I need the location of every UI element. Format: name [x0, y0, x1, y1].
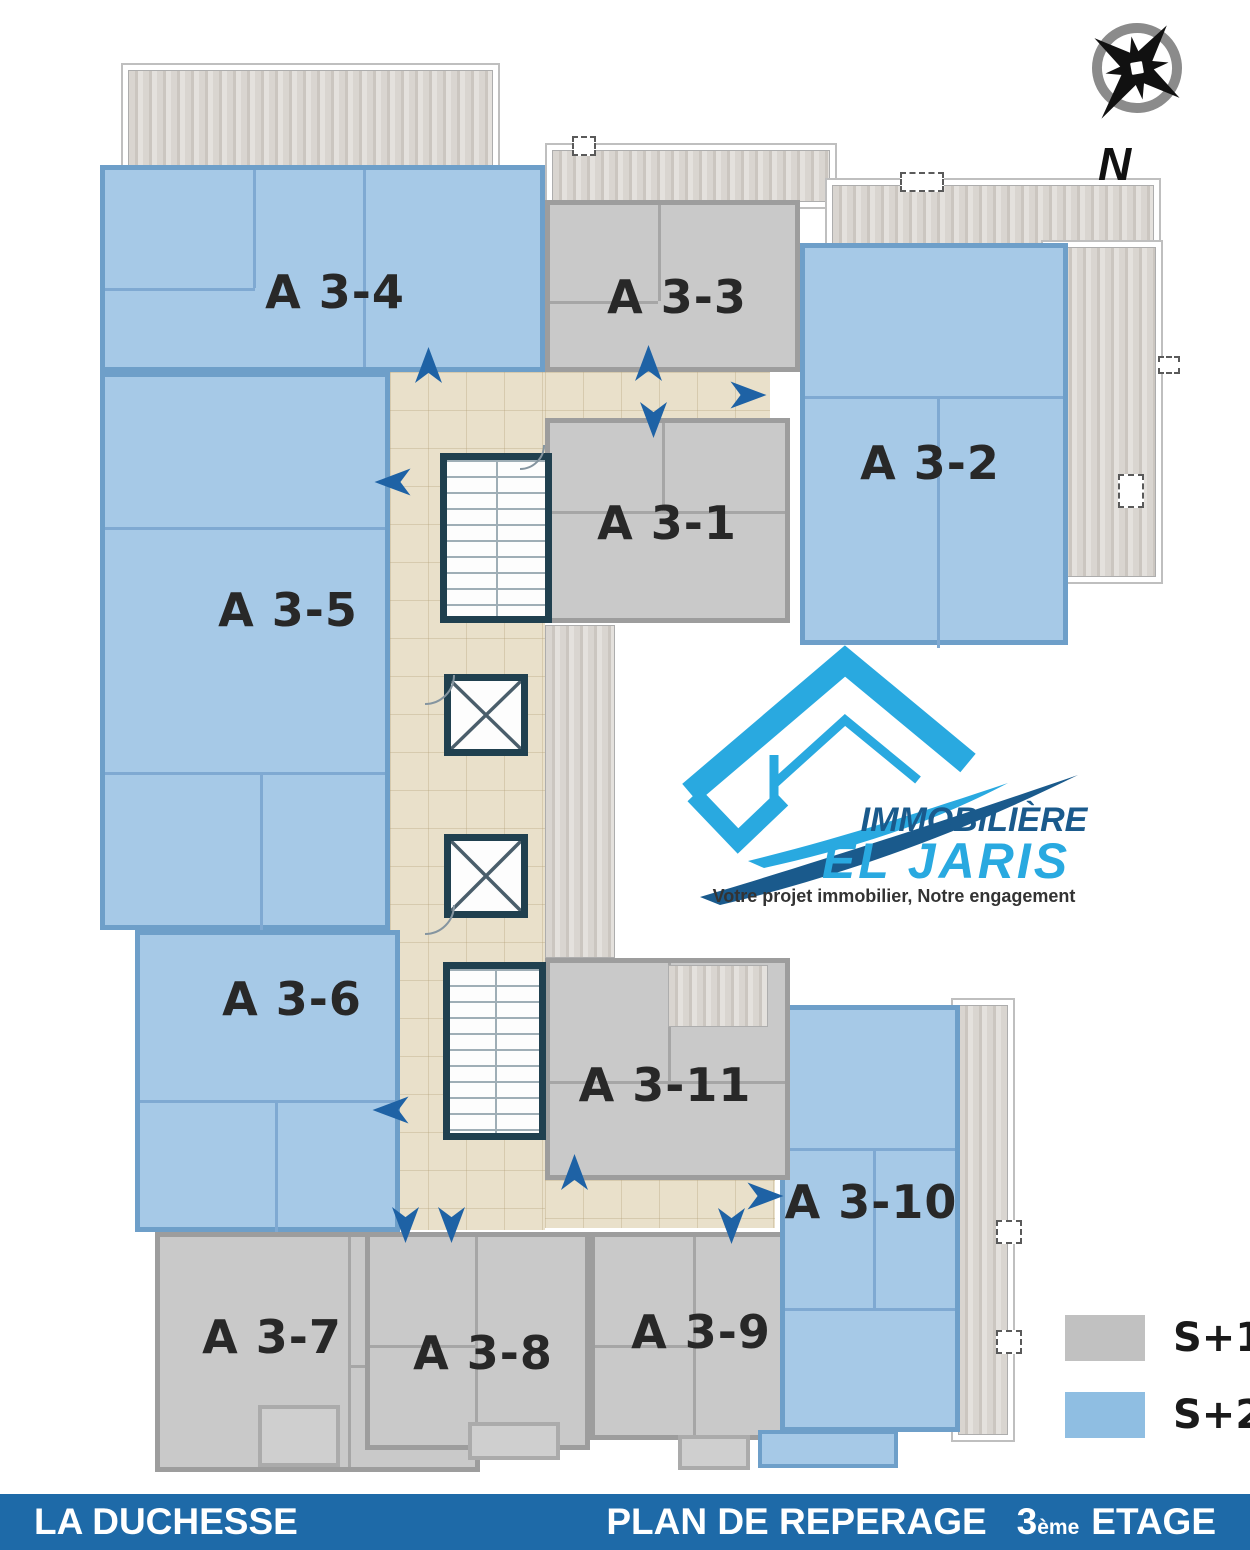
project-name: LA DUCHESSE — [34, 1501, 298, 1543]
corridor-bottom — [545, 1180, 775, 1228]
logo-brand-line2: EL JARIS — [822, 833, 1070, 889]
footer-bar: LA DUCHESSE PLAN DE REPERAGE 3 ème ETAGE — [0, 1494, 1250, 1550]
floor-word: ETAGE — [1091, 1501, 1216, 1543]
apartment-A3-6: A 3-6 — [135, 930, 400, 1232]
room-partition — [140, 1100, 395, 1103]
service-box — [996, 1330, 1022, 1354]
apartment-label: A 3-7 — [202, 1310, 342, 1364]
apartment-A3-2: A 3-2 — [800, 243, 1068, 645]
floor-ordinal: ème — [1037, 1516, 1079, 1540]
room-partition — [275, 1100, 278, 1237]
service-box — [996, 1220, 1022, 1244]
apartment-A3-9: A 3-9 — [590, 1232, 790, 1440]
room-partition — [348, 1237, 351, 1467]
brand-logo: IMMOBILIÈRE EL JARIS Votre projet immobi… — [678, 645, 1098, 915]
floor-number: 3 — [1017, 1501, 1038, 1543]
balcony — [468, 1422, 560, 1460]
apartment-A3-4: A 3-4 — [100, 165, 545, 372]
apartment-label: A 3-10 — [785, 1175, 958, 1229]
apartment-label: A 3-4 — [265, 265, 405, 319]
apartment-label: A 3-11 — [579, 1058, 752, 1112]
legend-item-s2: S+2 — [1065, 1392, 1250, 1438]
room-partition — [105, 527, 385, 530]
room-partition — [785, 1308, 955, 1311]
room-partition — [785, 1148, 955, 1151]
service-box — [572, 136, 596, 156]
terrace-top-middle — [552, 150, 830, 202]
stairwell-bottom — [443, 962, 546, 1140]
elevator-shaft — [444, 834, 528, 918]
legend-label-s1: S+1 — [1173, 1315, 1250, 1361]
room-partition — [105, 772, 385, 775]
apartment-A3-5: A 3-5 — [100, 372, 390, 930]
terrace-top-right — [832, 185, 1154, 247]
compass-north-label: N — [1098, 138, 1132, 190]
balcony — [758, 1430, 898, 1468]
room-partition — [105, 288, 255, 291]
apartment-label: A 3-1 — [597, 496, 737, 550]
terrace-core-deck — [545, 625, 615, 958]
legend-item-s1: S+1 — [1065, 1315, 1250, 1361]
apartment-label: A 3-8 — [413, 1326, 553, 1380]
elevator-shaft — [444, 674, 528, 756]
apartment-A3-1: A 3-1 — [545, 418, 790, 623]
legend-label-s2: S+2 — [1173, 1392, 1250, 1438]
apartment-label: A 3-2 — [860, 436, 1000, 490]
balcony — [258, 1405, 340, 1467]
apartment-label: A 3-5 — [218, 583, 358, 637]
room-partition — [253, 170, 256, 288]
room-partition — [805, 396, 1063, 399]
terrace-top-left — [128, 70, 493, 166]
room-partition — [937, 396, 940, 648]
plan-title-text: PLAN DE REPERAGE — [606, 1501, 986, 1543]
apartment-A3-8: A 3-8 — [365, 1232, 590, 1450]
plan-title: PLAN DE REPERAGE 3 ème ETAGE — [606, 1501, 1216, 1543]
legend-swatch-s2 — [1065, 1392, 1145, 1438]
service-box — [1158, 356, 1180, 374]
apartment-label: A 3-6 — [222, 972, 362, 1026]
room-partition — [260, 772, 263, 935]
stairwell-top — [440, 453, 552, 623]
legend-swatch-s1 — [1065, 1315, 1145, 1361]
apartment-label: A 3-9 — [631, 1305, 771, 1359]
apartment-A3-3: A 3-3 — [545, 200, 800, 372]
service-box — [900, 172, 944, 192]
balcony — [678, 1435, 750, 1470]
terrace-a3-11-patch — [668, 965, 768, 1027]
logo-tagline: Votre projet immobilier, Notre engagemen… — [713, 886, 1076, 906]
apartment-A3-10: A 3-10 — [780, 1005, 960, 1432]
legend: S+1 S+2 — [1065, 1315, 1250, 1469]
compass-rose: N — [1072, 6, 1202, 191]
floor-plan-page: A 3-4 A 3-3 A 3-2 A 3-1 A 3-5 A 3-6 A 3-… — [0, 0, 1250, 1550]
apartment-label: A 3-3 — [607, 270, 747, 324]
service-box — [1118, 474, 1144, 508]
